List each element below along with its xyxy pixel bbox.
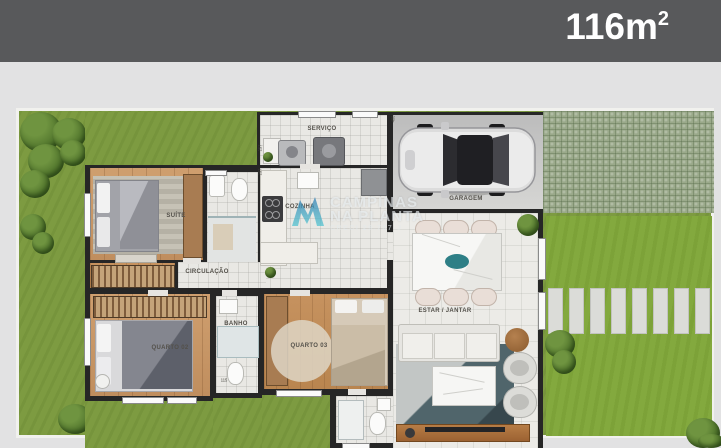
pillow [335, 300, 357, 313]
side-table [505, 328, 529, 352]
area-value: 116m [565, 6, 658, 47]
room-label-garagem: GARAGEM [449, 196, 482, 202]
header-bar: 116m2 [0, 0, 721, 62]
stove [262, 196, 283, 222]
bedside-table [95, 374, 110, 389]
kitchen-counter-bottom [260, 242, 318, 264]
marble-vein [443, 388, 483, 395]
room-label-banho: BANHO [224, 321, 248, 327]
kitchen-living-opening [387, 232, 393, 260]
window [122, 397, 164, 404]
dining-table [412, 233, 502, 291]
pillow [97, 324, 111, 352]
window [167, 397, 197, 404]
burner [272, 211, 280, 219]
marble-vein [439, 372, 484, 383]
bath-mat [213, 224, 233, 250]
window [342, 443, 370, 448]
quarto03-bed [331, 298, 388, 386]
area-size-label: 116m2 [565, 6, 669, 48]
burner [272, 199, 280, 207]
window [538, 238, 546, 280]
bush [698, 434, 721, 448]
blanket [120, 181, 158, 249]
bath3-shower [338, 400, 364, 440]
window [84, 193, 91, 237]
marble-vein [453, 269, 492, 280]
bush [32, 232, 54, 254]
vase [405, 428, 415, 438]
lawn-patch [213, 398, 262, 448]
door-opening [300, 164, 320, 169]
hall-floor [178, 262, 260, 288]
sofa-cushion [466, 333, 497, 359]
sofa [398, 324, 500, 362]
marble-vein [422, 234, 460, 247]
door-opening [348, 389, 366, 395]
banho-toilet [227, 362, 244, 385]
armchair [503, 386, 537, 418]
door-opening [183, 258, 201, 264]
stone [569, 288, 584, 334]
room-label-quarto02: QUARTO 02 [152, 345, 189, 351]
floorplan-image: SERVIÇO GARAGEM SUÍTE COZINHA CIRCULAÇÃO… [0, 0, 721, 448]
stone [653, 288, 668, 334]
coffee-table [432, 366, 496, 406]
fridge [361, 169, 387, 196]
washer-door [286, 146, 298, 158]
kitchen-sink [297, 172, 319, 189]
plant-icon [265, 267, 276, 278]
area-exponent: 2 [658, 8, 669, 30]
room-label-circulacao: CIRCULAÇÃO [185, 269, 228, 275]
driveway-pavers [543, 111, 714, 213]
washer [278, 140, 306, 166]
pillow [97, 183, 110, 213]
suite-wardrobe [183, 174, 203, 258]
stone [674, 288, 689, 334]
room-label-quarto03: QUARTO 03 [291, 343, 328, 349]
service-door [352, 111, 378, 118]
window [538, 292, 546, 330]
door-opening [148, 290, 168, 296]
watermark: CAMPINAS NA PLANTA CRECI 29.707-J [291, 196, 424, 232]
lawn-patch [85, 112, 257, 165]
table-centerpiece [445, 254, 469, 269]
dimension-115: 115 [221, 379, 228, 383]
stone [590, 288, 605, 334]
watermark-creci: CRECI 29.707-J [330, 225, 424, 232]
banho-sink [219, 299, 238, 314]
sofa-cushion [402, 333, 433, 359]
toilet [231, 178, 248, 201]
room-label-servico: SERVIÇO [308, 126, 337, 132]
dining-chair [471, 288, 497, 306]
door-opening [290, 290, 310, 296]
watermark-brand-line2: NA PLANTA [330, 210, 424, 224]
watermark-logo-icon [291, 196, 325, 227]
stone [611, 288, 626, 334]
window [276, 390, 322, 397]
dryer [313, 137, 345, 166]
indoor-plant [517, 214, 539, 236]
dimension-400: 400 [392, 116, 396, 123]
bush [60, 140, 86, 166]
blanket [122, 321, 192, 389]
quarto02-wardrobe [93, 296, 207, 318]
tv-console [396, 424, 530, 442]
armchair-seat [510, 360, 529, 376]
lawn-patch [262, 395, 330, 448]
stone [548, 288, 563, 334]
dimension-257: 257 [259, 169, 263, 176]
bush [20, 170, 50, 198]
window [298, 111, 336, 118]
pillow [97, 217, 110, 247]
pillow [362, 300, 384, 313]
tv [425, 427, 505, 432]
dining-chair [415, 288, 441, 306]
plant-icon [263, 152, 273, 162]
car-top-view [397, 120, 537, 200]
stepping-stone-path [548, 288, 712, 334]
dryer-door [322, 144, 336, 158]
bush [552, 350, 576, 374]
suite-bench [115, 254, 157, 263]
sofa-cushion [434, 333, 465, 359]
dimension-257: 257 [259, 145, 263, 152]
stone [695, 288, 710, 334]
lawn-patch [85, 401, 213, 448]
room-label-suite: SUÍTE [166, 213, 185, 219]
suite-bed [95, 180, 159, 252]
blanket [332, 325, 385, 385]
quarto03-rug [271, 320, 333, 382]
dining-chair [443, 288, 469, 306]
room-label-estar-jantar: ESTAR / JANTAR [419, 308, 472, 314]
bath3-sink [377, 398, 391, 411]
bath3-toilet [369, 412, 386, 435]
stone [632, 288, 647, 334]
window [84, 318, 91, 366]
armchair [503, 352, 537, 384]
door-opening [222, 290, 237, 296]
suite-closet [91, 265, 175, 288]
armchair-seat [510, 394, 529, 410]
bath-sink [209, 175, 225, 197]
window [205, 170, 227, 176]
banho-shower [217, 326, 259, 358]
